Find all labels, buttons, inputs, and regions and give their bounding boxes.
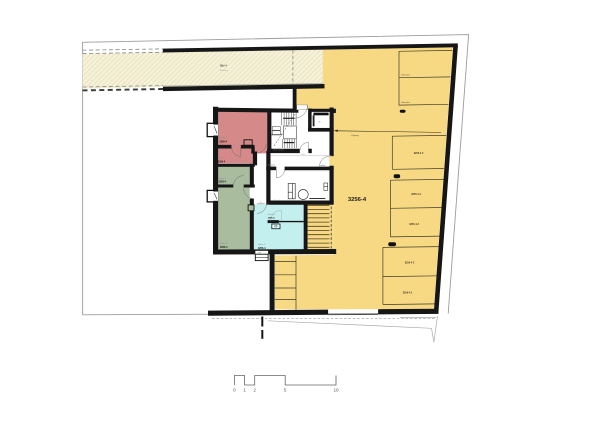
svg-text:F 88: F 88 [258,253,261,255]
svg-text:5: 5 [284,388,287,393]
svg-text:Einfahrt: Einfahrt [220,69,228,72]
svg-text:Keller 5: Keller 5 [258,243,266,246]
svg-text:09: 09 [234,145,236,147]
svg-text:3256-4: 3256-4 [219,181,227,184]
svg-text:Keller 6: Keller 6 [268,213,276,216]
svg-text:3256-4: 3256-4 [258,247,266,250]
svg-text:3256-4: 3256-4 [218,160,226,163]
svg-text:2: 2 [253,388,256,393]
svg-text:Keller 1: Keller 1 [220,136,228,139]
svg-text:Zugang: Zugang [351,135,359,137]
svg-text:Keller 3: Keller 3 [219,177,227,180]
svg-text:3256-4: 3256-4 [220,141,228,144]
svg-text:3256-4-3: 3256-4-3 [409,223,419,226]
svg-text:Technik: Technik [274,200,282,202]
svg-text:Besucher: Besucher [402,102,411,104]
svg-text:Silo 4: Silo 4 [220,65,227,68]
svg-text:0: 0 [233,388,236,393]
svg-text:3256-4-4: 3256-4-4 [411,193,421,196]
svg-text:3256-4: 3256-4 [268,217,276,220]
svg-text:Besucher: Besucher [402,75,411,77]
svg-text:3256-4-1: 3256-4-1 [403,292,413,295]
svg-text:Keller 2: Keller 2 [218,156,226,159]
svg-text:3256-4: 3256-4 [348,197,367,203]
svg-text:3256-4-5: 3256-4-5 [414,152,424,155]
svg-text:3256-4: 3256-4 [220,246,228,249]
svg-text:1: 1 [243,388,246,393]
svg-text:001: 001 [302,154,305,156]
svg-text:Vorplatz: Vorplatz [268,163,276,166]
svg-text:10: 10 [333,388,339,393]
svg-text:09: 09 [260,202,262,204]
svg-text:18 St 17.2/28: 18 St 17.2/28 [273,148,284,151]
svg-text:Keller 4: Keller 4 [220,242,228,245]
svg-text:3256-4-2: 3256-4-2 [405,261,415,264]
